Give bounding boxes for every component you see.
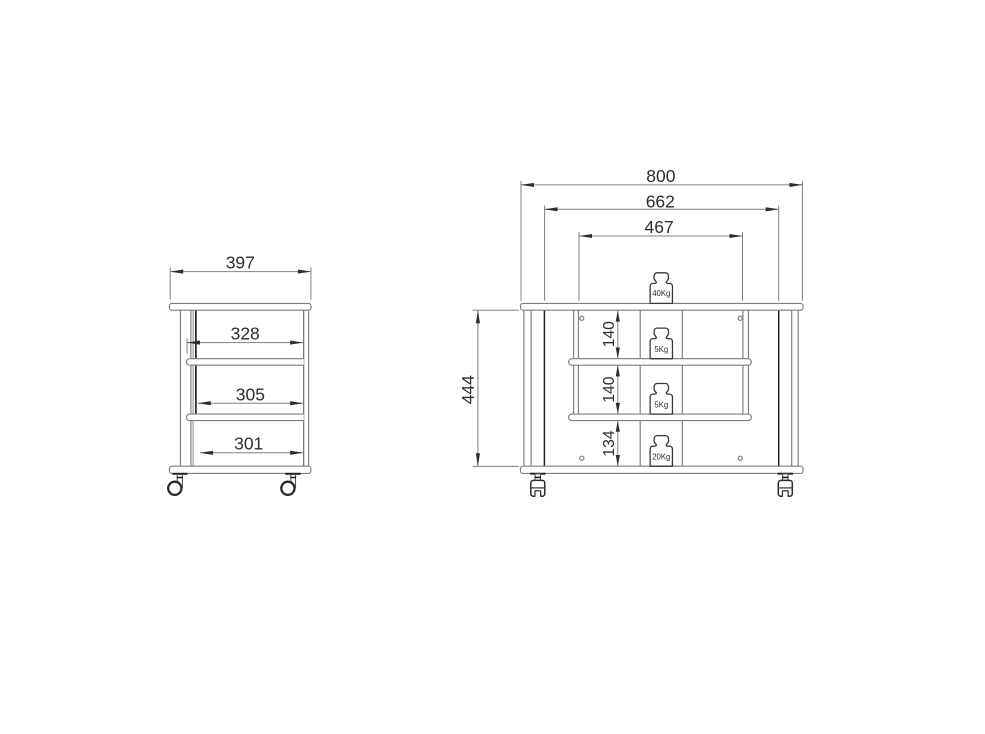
svg-text:5Kg: 5Kg (654, 401, 668, 410)
svg-text:40Kg: 40Kg (652, 289, 670, 298)
svg-text:467: 467 (644, 217, 673, 237)
svg-text:140: 140 (601, 376, 618, 403)
svg-text:140: 140 (601, 321, 618, 348)
svg-text:444: 444 (458, 375, 478, 404)
svg-text:328: 328 (231, 323, 260, 343)
svg-text:662: 662 (646, 192, 675, 212)
svg-text:5Kg: 5Kg (654, 345, 668, 354)
svg-text:301: 301 (234, 434, 263, 454)
svg-text:20Kg: 20Kg (652, 453, 670, 462)
svg-text:800: 800 (646, 166, 675, 186)
svg-text:397: 397 (226, 253, 255, 273)
svg-text:305: 305 (236, 385, 265, 405)
svg-text:134: 134 (601, 430, 618, 457)
